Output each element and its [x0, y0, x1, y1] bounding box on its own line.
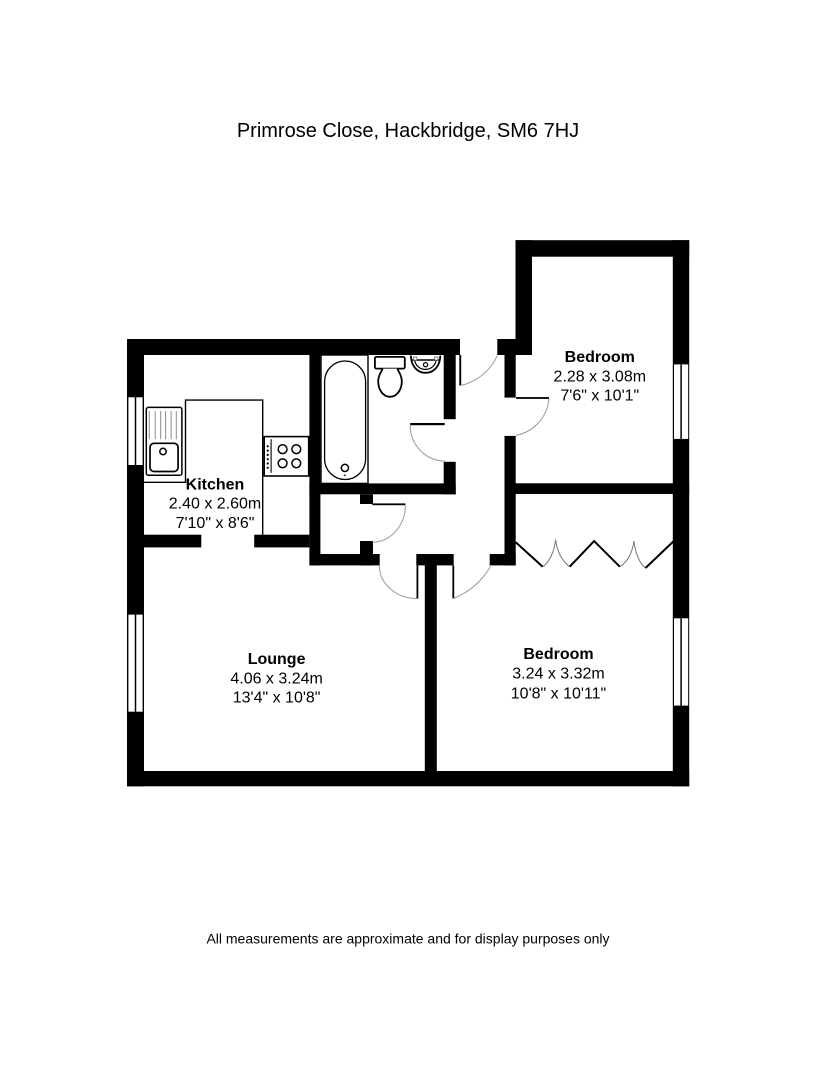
svg-text:Primrose Close, Hackbridge, SM: Primrose Close, Hackbridge, SM6 7HJ: [237, 120, 579, 142]
svg-text:2.28 x 3.08m: 2.28 x 3.08m: [554, 368, 647, 385]
svg-text:Bedroom: Bedroom: [565, 349, 635, 366]
svg-text:13'4" x 10'8": 13'4" x 10'8": [233, 690, 321, 707]
svg-text:7'10" x 8'6": 7'10" x 8'6": [176, 515, 255, 532]
svg-text:Kitchen: Kitchen: [186, 476, 245, 493]
svg-text:7'6" x 10'1": 7'6" x 10'1": [560, 388, 639, 405]
svg-text:Bedroom: Bedroom: [523, 646, 593, 663]
svg-text:All measurements are approxima: All measurements are approximate and for…: [206, 931, 609, 947]
svg-text:3.24 x 3.32m: 3.24 x 3.32m: [512, 666, 605, 683]
svg-text:2.40 x 2.60m: 2.40 x 2.60m: [169, 496, 262, 513]
svg-text:Lounge: Lounge: [248, 651, 306, 668]
svg-text:10'8" x 10'11": 10'8" x 10'11": [511, 685, 606, 702]
svg-text:4.06 x 3.24m: 4.06 x 3.24m: [230, 670, 323, 687]
